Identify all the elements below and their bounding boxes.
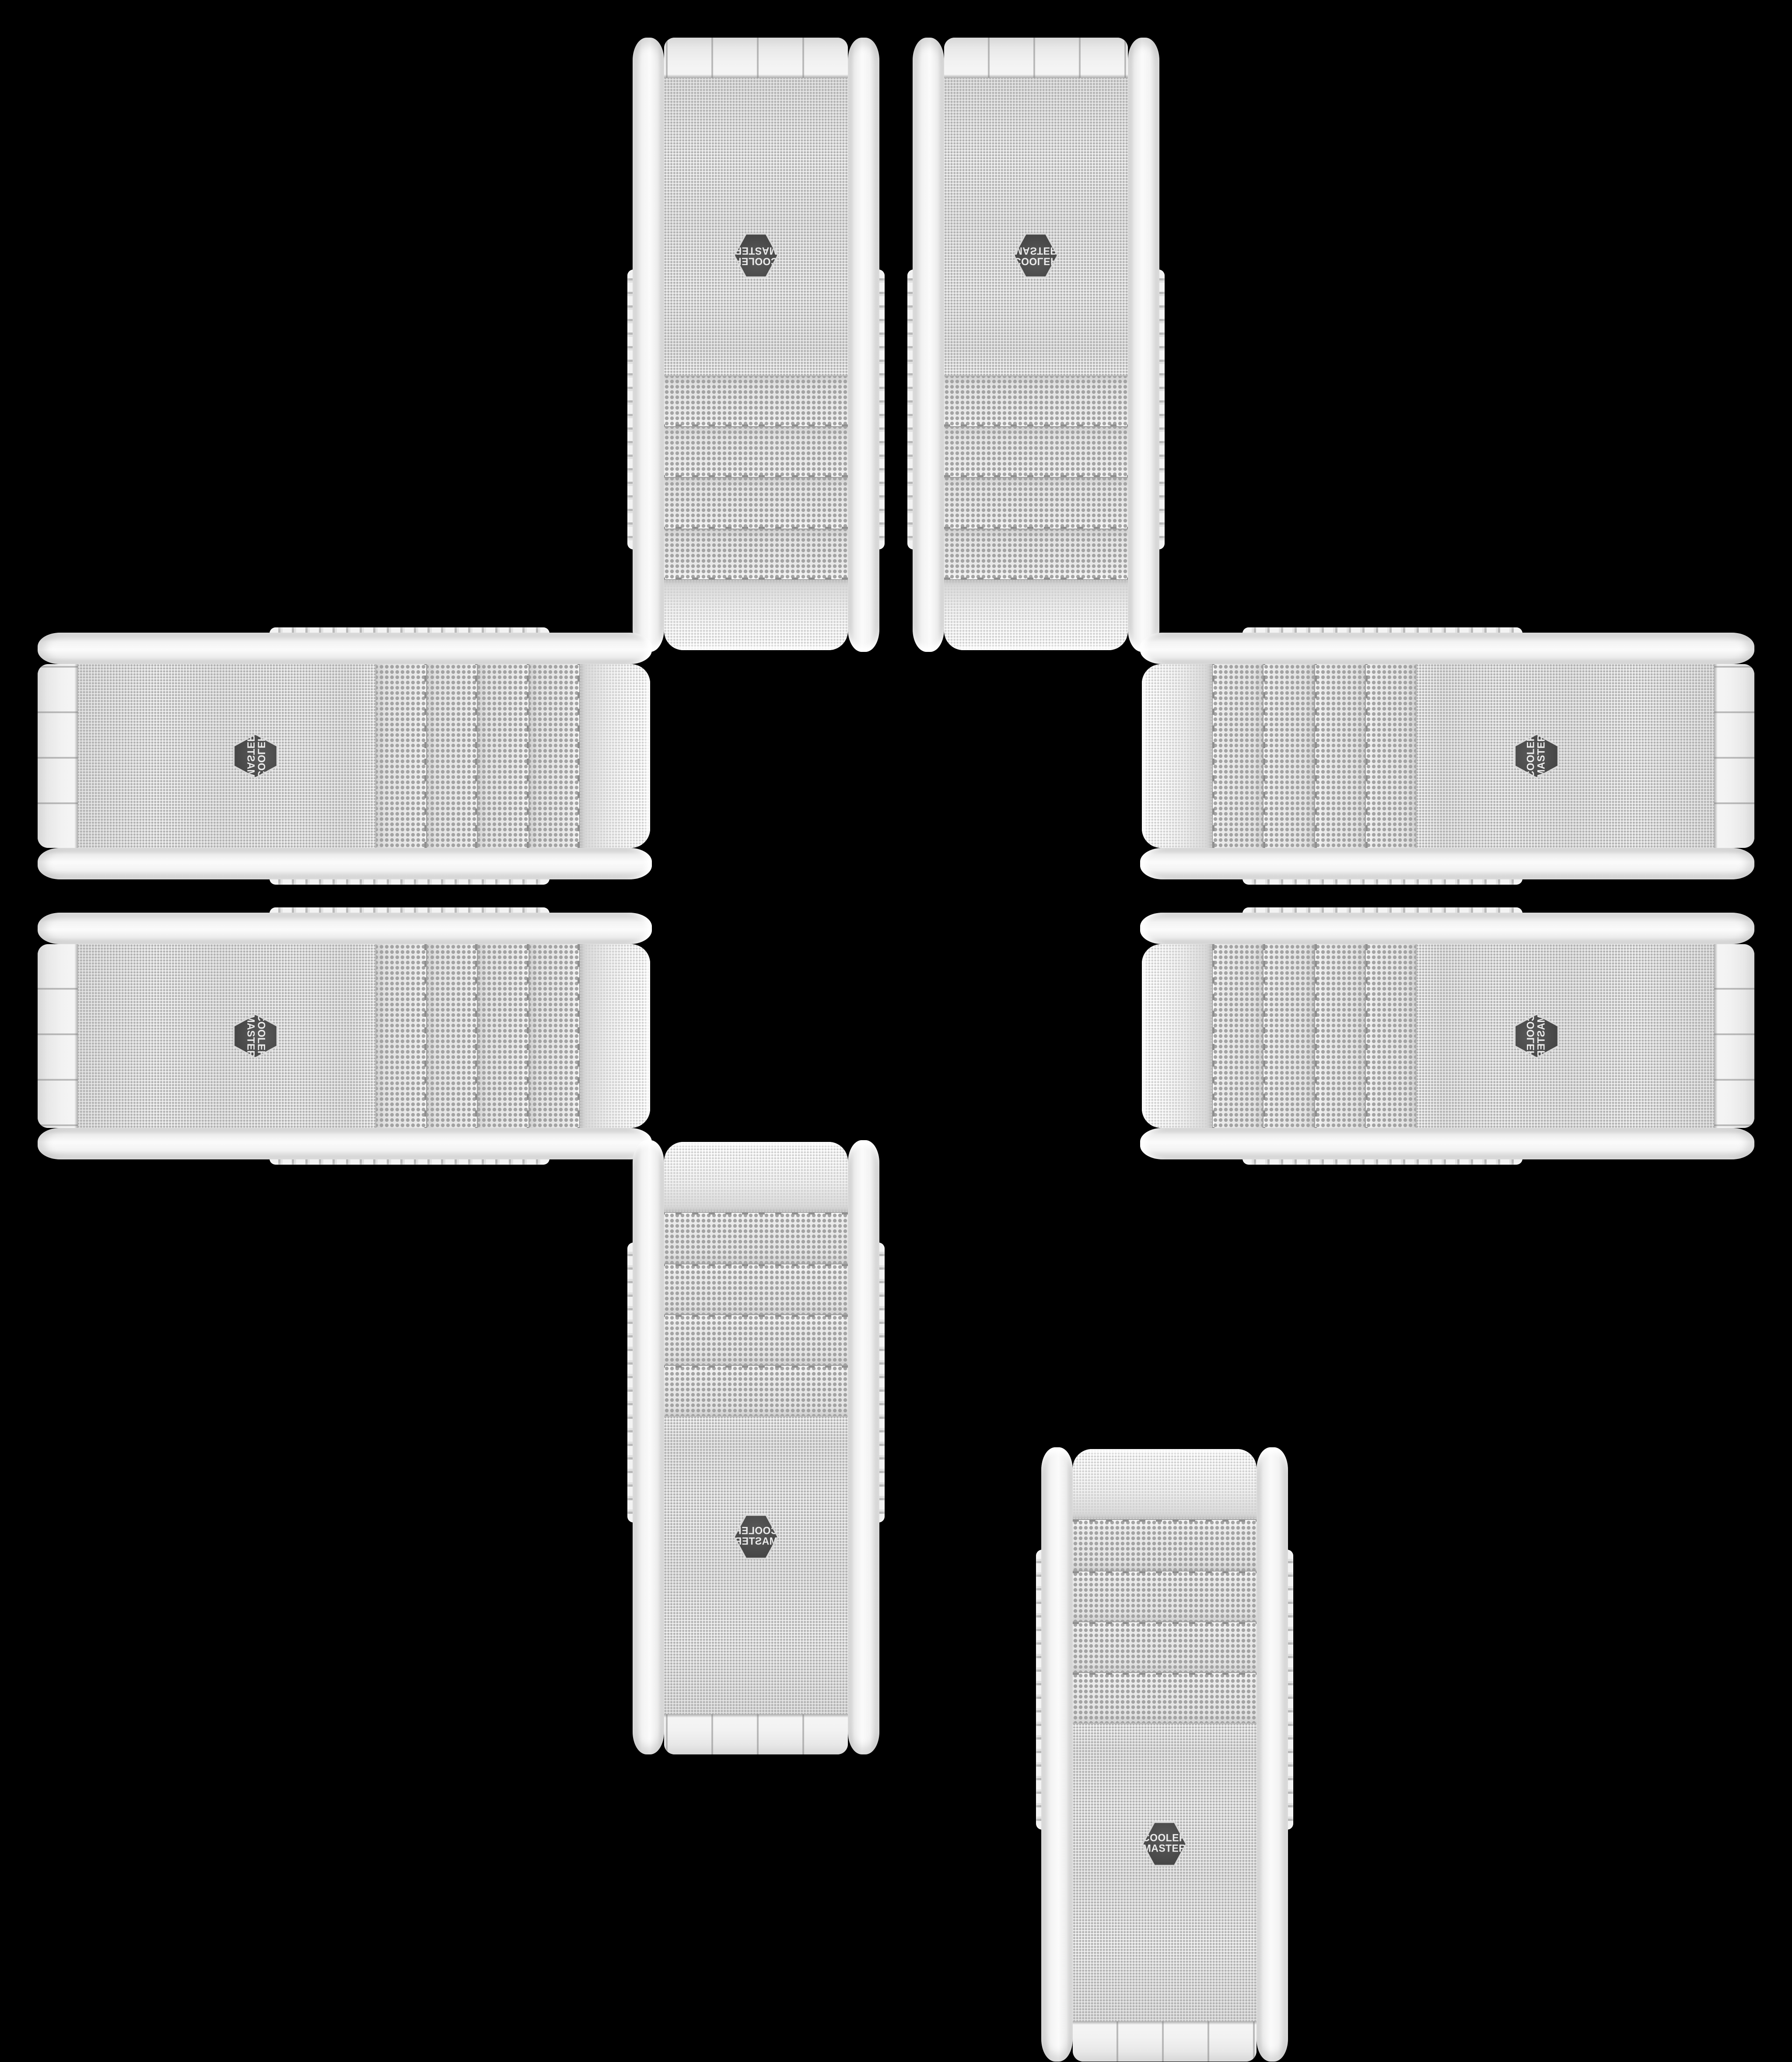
- front-panel: COOLER MASTER: [38, 665, 650, 848]
- bay-cover: [944, 427, 1128, 478]
- badge-line1: COOLER: [255, 734, 266, 778]
- badge-line1: COOLER: [1142, 1833, 1186, 1844]
- cooler-master-badge: COOLER MASTER: [231, 734, 280, 779]
- bay-cover: [1314, 944, 1365, 1128]
- cooler-master-badge-face: COOLER MASTER: [735, 1514, 777, 1560]
- end-cap-band: [665, 38, 848, 78]
- badge-line1: COOLER: [1014, 255, 1058, 266]
- bay-cover: [1073, 1570, 1256, 1621]
- side-rail-right: [633, 1141, 665, 1755]
- side-rail-left: [848, 1141, 880, 1755]
- badge-line2: MASTER: [735, 1537, 778, 1547]
- bay-cover: [1212, 944, 1263, 1128]
- curved-mesh-shoulder: [580, 944, 650, 1128]
- end-cap-band: [1715, 665, 1755, 848]
- front-panel: COOLER MASTER: [665, 38, 848, 650]
- bay-cover: [427, 944, 478, 1128]
- front-panel: COOLER MASTER: [1142, 665, 1755, 848]
- drive-bay-covers: [665, 1212, 848, 1416]
- pc-case-left-bottom: COOLER MASTER: [38, 907, 652, 1165]
- curved-mesh-shoulder: [1142, 665, 1212, 848]
- side-rail-left: [848, 38, 880, 652]
- cooler-master-badge: COOLER MASTER: [1013, 231, 1059, 280]
- side-rail-left: [913, 38, 944, 652]
- side-rail-right: [633, 38, 665, 652]
- badge-line1: COOLER: [255, 1014, 266, 1058]
- front-mesh-panel: COOLER MASTER: [78, 665, 376, 848]
- side-rail-left: [38, 848, 652, 880]
- bay-cover: [944, 529, 1128, 580]
- bay-cover: [1365, 665, 1416, 848]
- bay-cover: [944, 376, 1128, 427]
- badge-line2: MASTER: [1536, 735, 1547, 778]
- badge-line2: MASTER: [1143, 1844, 1186, 1855]
- bay-cover: [665, 478, 848, 529]
- side-rail-right: [1141, 633, 1755, 665]
- cooler-master-badge: COOLER MASTER: [734, 231, 779, 280]
- end-cap-band: [1073, 2022, 1256, 2062]
- drive-bay-covers: [1212, 665, 1416, 848]
- badge-line2: MASTER: [1536, 1014, 1547, 1058]
- pc-case-top-left: COOLER MASTER: [628, 38, 885, 652]
- bay-cover: [529, 944, 580, 1128]
- pc-case-bottom-left: COOLER MASTER: [628, 1141, 885, 1755]
- cooler-master-badge: COOLER MASTER: [1142, 1820, 1187, 1869]
- curved-mesh-shoulder: [944, 580, 1128, 650]
- badge-line1: COOLER: [1526, 1014, 1537, 1058]
- curved-mesh-shoulder: [580, 665, 650, 848]
- side-rail-left: [38, 913, 652, 944]
- cooler-master-badge-face: COOLER MASTER: [1144, 1821, 1186, 1867]
- cooler-master-badge: COOLER MASTER: [734, 1512, 779, 1561]
- front-mesh-panel: COOLER MASTER: [78, 944, 376, 1128]
- bay-cover: [1365, 944, 1416, 1128]
- bay-cover: [665, 529, 848, 580]
- front-panel: COOLER MASTER: [38, 944, 650, 1128]
- side-rail-right: [1141, 1128, 1755, 1159]
- drive-bay-covers: [665, 376, 848, 580]
- bay-cover: [478, 665, 529, 848]
- cooler-master-badge: COOLER MASTER: [231, 1013, 280, 1059]
- pc-case-left-top: COOLER MASTER: [38, 628, 652, 885]
- side-rail-left: [1141, 848, 1755, 880]
- pc-case-top-right: COOLER MASTER: [907, 38, 1165, 652]
- bay-cover: [665, 376, 848, 427]
- bay-cover: [665, 1263, 848, 1314]
- curved-mesh-shoulder: [1073, 1449, 1256, 1519]
- cooler-master-badge-face: COOLER MASTER: [1514, 735, 1560, 777]
- front-mesh-panel: COOLER MASTER: [665, 78, 848, 376]
- bay-cover: [529, 665, 580, 848]
- badge-line2: MASTER: [245, 735, 255, 778]
- pc-case-right-bottom: COOLER MASTER: [1141, 907, 1755, 1165]
- side-rail-right: [38, 1128, 652, 1159]
- badge-line2: MASTER: [245, 1014, 255, 1058]
- end-cap-band: [944, 38, 1128, 78]
- cooler-master-badge-face: COOLER MASTER: [1514, 1015, 1560, 1057]
- bay-cover: [376, 665, 427, 848]
- side-rail-left: [1141, 913, 1755, 944]
- drive-bay-covers: [1212, 944, 1416, 1128]
- drive-bay-covers: [944, 376, 1128, 580]
- bay-cover: [1212, 665, 1263, 848]
- cooler-master-badge: COOLER MASTER: [1512, 1013, 1561, 1059]
- front-panel: COOLER MASTER: [1073, 1449, 1256, 2062]
- bay-cover: [665, 1365, 848, 1416]
- cooler-master-badge-face: COOLER MASTER: [1015, 233, 1057, 278]
- end-cap-band: [1715, 944, 1755, 1128]
- front-panel: COOLER MASTER: [944, 38, 1128, 650]
- pc-case-bottom-right: COOLER MASTER: [1036, 1448, 1293, 2062]
- front-mesh-panel: COOLER MASTER: [665, 1416, 848, 1715]
- front-mesh-panel: COOLER MASTER: [1416, 665, 1715, 848]
- pc-case-right-top: COOLER MASTER: [1141, 628, 1755, 885]
- bay-cover: [944, 478, 1128, 529]
- badge-line1: COOLER: [734, 255, 778, 266]
- bay-cover: [1073, 1621, 1256, 1673]
- badge-line2: MASTER: [735, 245, 778, 256]
- front-panel: COOLER MASTER: [665, 1142, 848, 1755]
- bay-cover: [1263, 944, 1314, 1128]
- bay-cover: [1314, 665, 1365, 848]
- bay-cover: [376, 944, 427, 1128]
- cooler-master-badge-face: COOLER MASTER: [233, 735, 278, 777]
- cooler-master-badge-face: COOLER MASTER: [735, 233, 777, 278]
- front-panel: COOLER MASTER: [1142, 944, 1755, 1128]
- front-mesh-panel: COOLER MASTER: [1416, 944, 1715, 1128]
- curved-mesh-shoulder: [665, 580, 848, 650]
- bay-cover: [478, 944, 529, 1128]
- badge-line1: COOLER: [734, 1526, 778, 1537]
- bay-cover: [665, 427, 848, 478]
- bay-cover: [1263, 665, 1314, 848]
- bay-cover: [427, 665, 478, 848]
- end-cap-band: [38, 665, 78, 848]
- side-rail-right: [1256, 1448, 1288, 2062]
- end-cap-band: [665, 1715, 848, 1755]
- side-rail-left: [1041, 1448, 1073, 2062]
- drive-bay-covers: [1073, 1519, 1256, 1723]
- bay-cover: [1073, 1672, 1256, 1723]
- bay-cover: [665, 1212, 848, 1264]
- front-mesh-panel: COOLER MASTER: [1073, 1723, 1256, 2022]
- bay-cover: [665, 1314, 848, 1365]
- curved-mesh-shoulder: [665, 1142, 848, 1212]
- cooler-master-badge: COOLER MASTER: [1512, 734, 1561, 779]
- side-rail-right: [1128, 38, 1159, 652]
- cooler-master-badge-face: COOLER MASTER: [233, 1015, 278, 1057]
- badge-line2: MASTER: [1014, 245, 1058, 256]
- bay-cover: [1073, 1519, 1256, 1571]
- drive-bay-covers: [376, 665, 580, 848]
- end-cap-band: [38, 944, 78, 1128]
- stage: COOLER MASTER COOLER MASTER: [0, 0, 1792, 1792]
- front-mesh-panel: COOLER MASTER: [944, 78, 1128, 376]
- side-rail-right: [38, 633, 652, 665]
- drive-bay-covers: [376, 944, 580, 1128]
- curved-mesh-shoulder: [1142, 944, 1212, 1128]
- badge-line1: COOLER: [1526, 734, 1537, 778]
